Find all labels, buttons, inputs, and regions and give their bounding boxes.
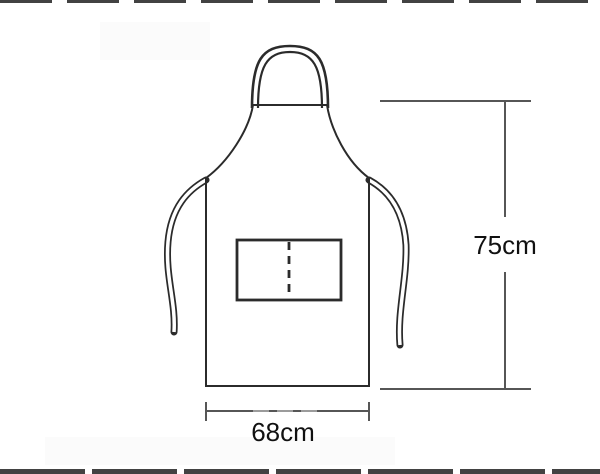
neck-strap-inner [258,52,322,108]
width-dimension-label: 68cm [251,417,315,447]
apron-body-outline [206,105,369,386]
neck-strap-outer [252,46,328,108]
height-dimension-label: 75cm [473,230,537,260]
faint-artifact-block-top [100,22,210,60]
right-waist-tie-core [369,180,406,345]
product-dimension-diagram: 75cm 68cm [0,0,600,474]
faint-artifact-block-bottom [45,437,395,465]
apron-diagram-canvas: 75cm 68cm [0,0,600,474]
apron-illustration [167,46,406,386]
left-waist-tie-core [167,180,206,332]
